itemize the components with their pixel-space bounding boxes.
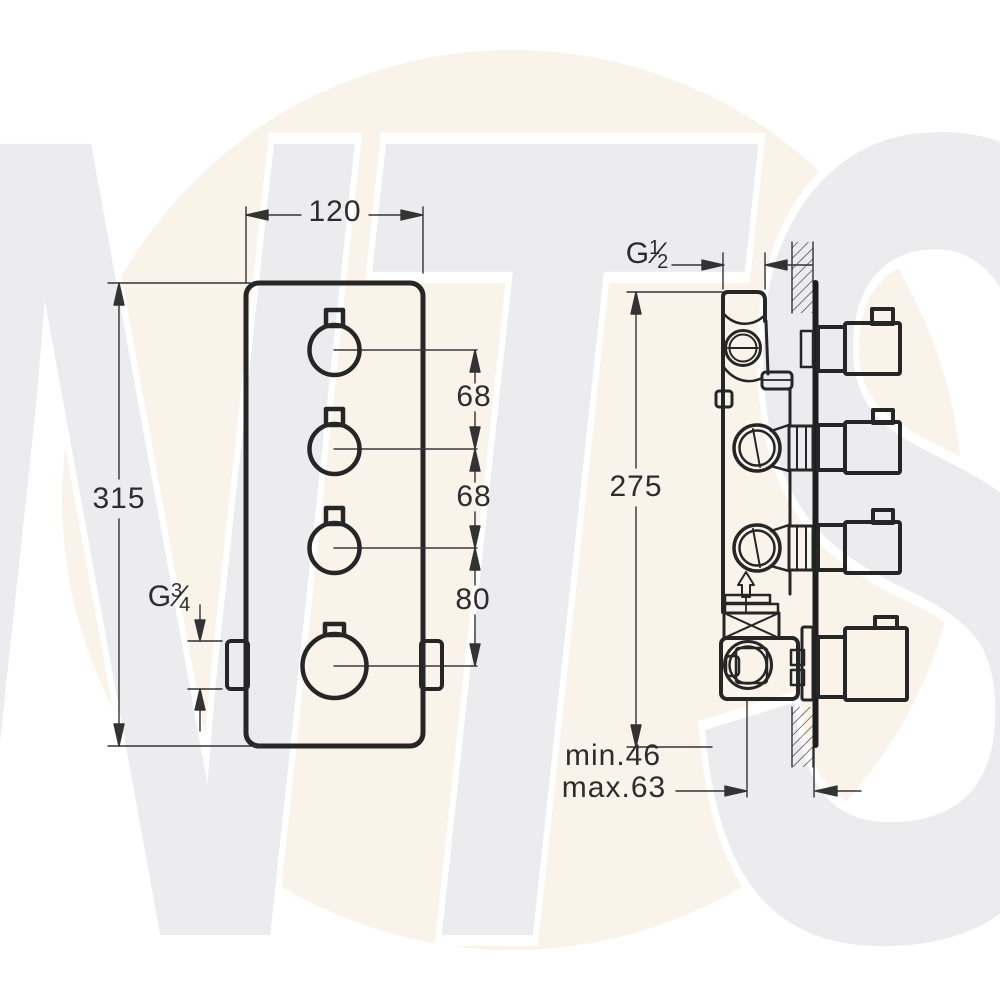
trim-plate-outline xyxy=(246,283,423,746)
valve-technical-drawing xyxy=(0,0,1000,1000)
dim-depth-min-label: min.46 xyxy=(565,741,661,771)
dim-spacing-label-1: 68 xyxy=(456,382,491,412)
valve-body xyxy=(716,292,813,699)
dim-width-label: 120 xyxy=(308,197,361,227)
knob-3 xyxy=(310,508,360,573)
handle-2 xyxy=(818,410,900,473)
watermark-strip: NTS NTS NTS NTS NTS NTS NTS NTS NTS NTS … xyxy=(0,989,1000,1000)
handle-4-volume xyxy=(818,617,907,700)
thread-g34-label: G3⁄4 xyxy=(148,582,191,612)
chamfer-block xyxy=(724,613,779,638)
dim-g12-lines xyxy=(672,253,812,289)
front-view-drawing xyxy=(108,207,480,746)
port-1 xyxy=(726,331,761,366)
knob-4-volume xyxy=(303,624,367,698)
port-2 xyxy=(734,425,813,471)
dim-spacing-label-3: 80 xyxy=(455,585,490,615)
side-view-drawing xyxy=(627,242,907,797)
port-3 xyxy=(734,525,813,571)
dim-g34-lines xyxy=(188,605,222,731)
dim-spacing-label-2: 68 xyxy=(456,482,491,512)
dim-height-label: 315 xyxy=(92,484,145,514)
handle-1 xyxy=(818,309,900,374)
volume-control-block xyxy=(721,638,804,699)
dim-side-height-label: 275 xyxy=(609,472,662,502)
thread-g12-label: G1⁄2 xyxy=(626,239,669,269)
handle-3 xyxy=(818,510,900,573)
dim-275-lines xyxy=(627,292,722,747)
knob-1 xyxy=(310,310,360,375)
dim-depth-max-label: max.63 xyxy=(562,773,666,803)
dim-depth-lines xyxy=(676,700,861,797)
knob-2 xyxy=(310,409,360,474)
technical-drawing-page: NTS xyxy=(0,0,1000,1000)
flow-arrow-icon xyxy=(738,572,754,597)
